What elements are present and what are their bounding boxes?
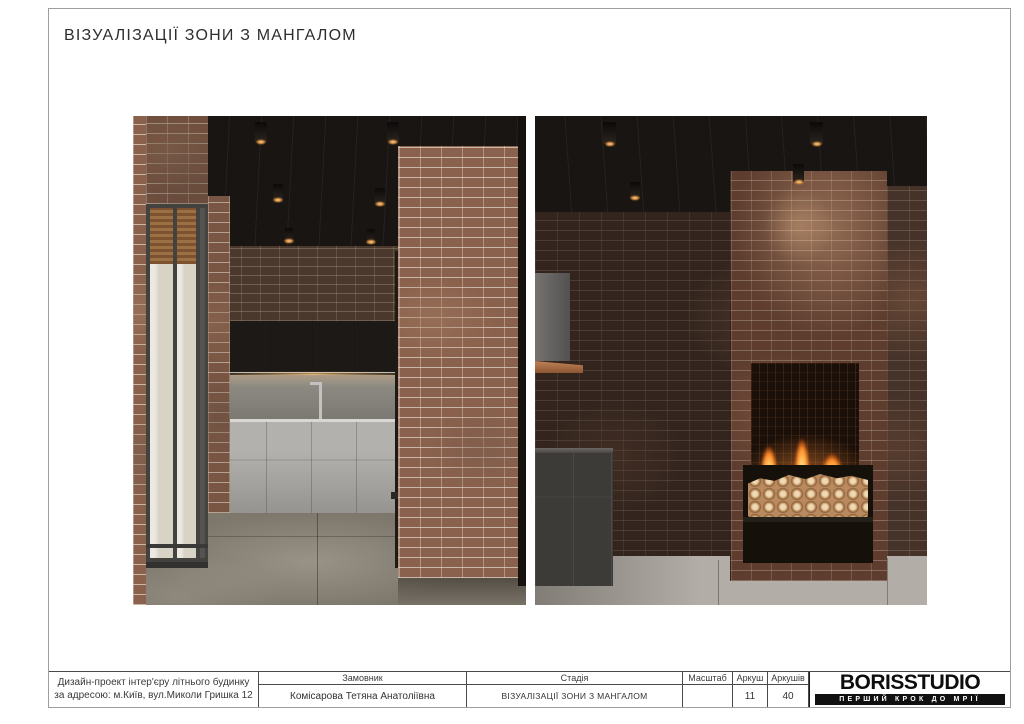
sheets-value: 40 xyxy=(768,685,808,707)
ceiling-spotlight xyxy=(603,122,616,144)
scale-value xyxy=(683,685,732,707)
base-cabinets xyxy=(535,448,613,586)
project-line-1: Дизайн-проект інтер'єру літнього будинку xyxy=(58,677,250,690)
firewood-logs xyxy=(748,474,868,517)
stage-value: ВІЗУАЛІЗАЦІЇ ЗОНИ З МАНГАЛОМ xyxy=(467,685,682,707)
project-line-2: за адресою: м.Київ, вул.Миколи Гришка 12 xyxy=(54,690,252,703)
wall-cabinet xyxy=(535,273,570,361)
inner-brick-column xyxy=(208,196,230,513)
door-rail xyxy=(146,562,208,568)
title-block: Дизайн-проект інтер'єру літнього будинку… xyxy=(49,671,1010,707)
ceiling-spotlight xyxy=(255,122,267,142)
ceiling-spotlight xyxy=(387,122,399,142)
studio-logo-name: BORISSTUDIO xyxy=(813,672,1007,694)
brick-lintel xyxy=(146,116,208,204)
project-description: Дизайн-проект інтер'єру літнього будинку… xyxy=(49,672,259,707)
render-fireplace-zone xyxy=(535,116,927,605)
floor-joint xyxy=(718,560,719,605)
right-brick-return xyxy=(887,186,927,561)
ceiling-spotlight xyxy=(793,164,804,182)
door-pane xyxy=(150,208,173,558)
wood-slat-reflection xyxy=(177,208,196,264)
ceiling-spotlight xyxy=(630,182,640,198)
back-brick-wall xyxy=(203,246,403,321)
brick-pillar xyxy=(398,146,518,578)
studio-logo: BORISSTUDIO ПЕРШИЙ КРОК ДО МРІЇ xyxy=(809,672,1010,707)
ceiling-spotlight xyxy=(367,229,375,242)
door-glass xyxy=(150,264,173,558)
sheet-label: Аркуш xyxy=(733,672,767,685)
sheet-cell: Аркуш 11 xyxy=(733,672,768,707)
sheets-label: Аркушів xyxy=(768,672,808,685)
glazed-door xyxy=(146,204,208,568)
sheet-value: 11 xyxy=(733,685,767,707)
sheet-frame: ВІЗУАЛІЗАЦІЇ ЗОНИ З МАНГАЛОМ xyxy=(48,8,1011,708)
floor-joint xyxy=(317,513,318,605)
render-kitchen-zone xyxy=(133,116,526,605)
page-title: ВІЗУАЛІЗАЦІЇ ЗОНИ З МАНГАЛОМ xyxy=(64,27,357,45)
stage-cell: Стадія ВІЗУАЛІЗАЦІЇ ЗОНИ З МАНГАЛОМ xyxy=(467,672,683,707)
floor-joint xyxy=(887,558,888,605)
steel-base-cabinets xyxy=(221,419,401,513)
spotlight-glow xyxy=(763,186,833,266)
firewood-shelf xyxy=(743,517,873,522)
stage-label: Стадія xyxy=(467,672,682,685)
scale-cell: Масштаб xyxy=(683,672,733,707)
left-brick-jamb xyxy=(133,116,146,605)
client-label: Замовник xyxy=(259,672,466,685)
studio-logo-tagline: ПЕРШИЙ КРОК ДО МРІЇ xyxy=(815,694,1005,705)
design-sheet: ВІЗУАЛІЗАЦІЇ ЗОНИ З МАНГАЛОМ xyxy=(0,0,1024,724)
client-cell: Замовник Комісарова Тетяна Анатоліївна xyxy=(259,672,467,707)
ceiling-spotlight xyxy=(810,122,823,144)
wood-slat-reflection xyxy=(150,208,173,264)
sheets-cell: Аркушів 40 xyxy=(768,672,809,707)
firewood-niche xyxy=(743,465,873,563)
door-rail xyxy=(146,544,208,548)
client-value: Комісарова Тетяна Анатоліївна xyxy=(259,685,466,707)
ceiling-spotlight xyxy=(285,228,293,241)
faucet xyxy=(319,382,322,420)
door-glass xyxy=(177,264,196,558)
door-pane xyxy=(177,208,196,558)
upper-cabinets xyxy=(228,317,398,373)
scale-label: Масштаб xyxy=(683,672,732,685)
door-pane xyxy=(200,208,205,558)
ceiling-spotlight xyxy=(375,188,385,204)
edge-shadow xyxy=(518,116,526,586)
ceiling-spotlight xyxy=(273,184,283,200)
